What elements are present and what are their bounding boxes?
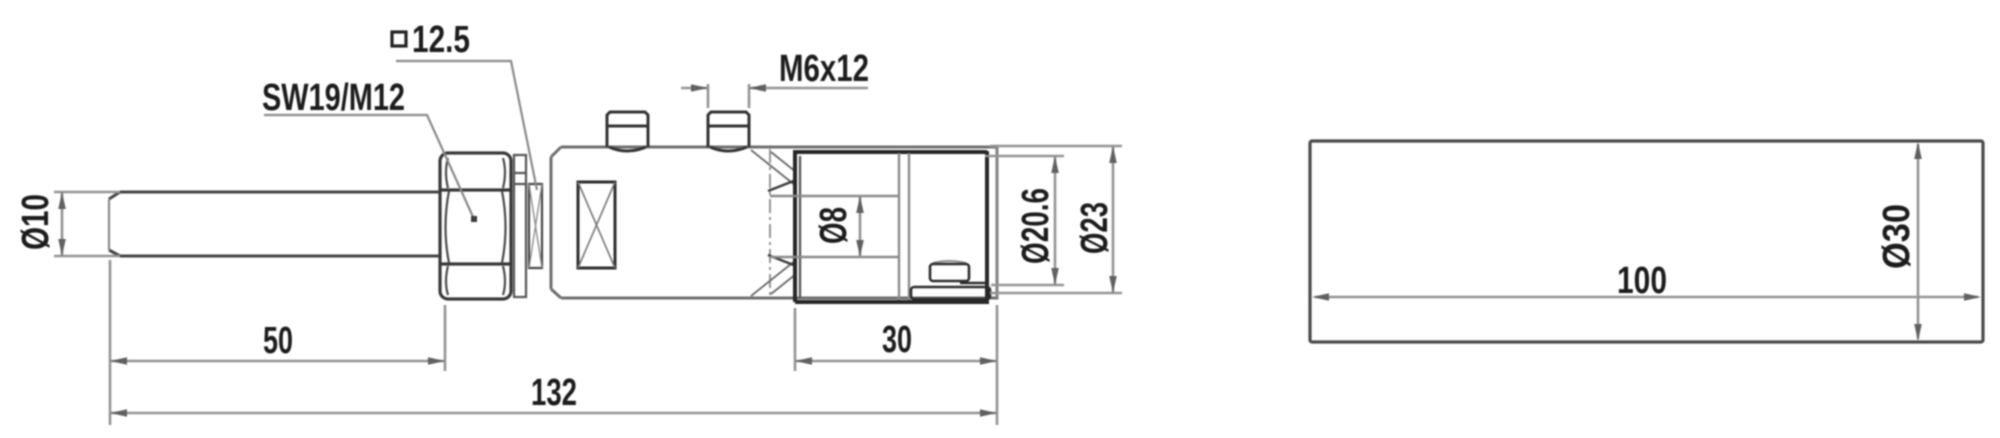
svg-text:Ø20.6: Ø20.6 (1015, 188, 1057, 264)
svg-text:50: 50 (263, 320, 293, 362)
svg-text:M6x12: M6x12 (779, 48, 869, 90)
svg-text:30: 30 (882, 319, 912, 361)
svg-text:Ø8: Ø8 (813, 207, 855, 244)
svg-text:Ø10: Ø10 (15, 194, 57, 250)
svg-text:Ø30: Ø30 (1876, 204, 1918, 269)
svg-text:132: 132 (531, 372, 577, 414)
svg-text:100: 100 (1617, 260, 1667, 302)
svg-text:12.5: 12.5 (412, 19, 470, 61)
svg-text:SW19/M12: SW19/M12 (262, 77, 405, 119)
svg-text:Ø23: Ø23 (1074, 202, 1116, 254)
